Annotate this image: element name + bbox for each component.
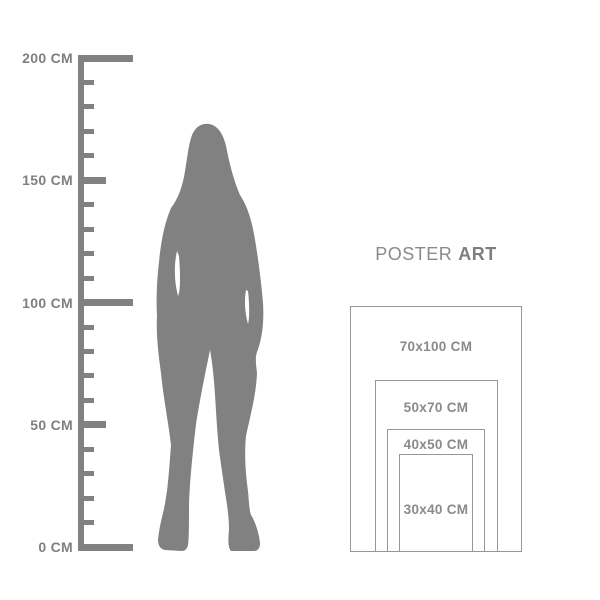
ruler-label-200cm: 200 CM [0,49,73,67]
ruler-tick-80cm [78,349,94,354]
ruler-tick-50cm [78,421,106,428]
ruler-tick-20cm [78,496,94,501]
ruler-tick-130cm [78,227,94,232]
ruler-tick-100cm [78,299,133,306]
ruler-tick-170cm [78,129,94,134]
ruler-label-50cm: 50 CM [0,416,73,434]
ruler-tick-30cm [78,471,94,476]
ruler-tick-110cm [78,276,94,281]
ruler-tick-90cm [78,325,94,330]
ruler-tick-120cm [78,251,94,256]
ruler-tick-70cm [78,373,94,378]
poster-size-label-30x40: 30x40 CM [350,502,522,518]
ruler-tick-150cm [78,177,106,184]
ruler-label-100cm: 100 CM [0,294,73,312]
ruler-tick-180cm [78,104,94,109]
ruler-tick-40cm [78,447,94,452]
ruler-tick-60cm [78,398,94,403]
ruler-tick-140cm [78,202,94,207]
ruler-tick-160cm [78,153,94,158]
woman-silhouette [140,115,290,560]
ruler-tick-190cm [78,80,94,85]
poster-size-label-70x100: 70x100 CM [350,339,522,355]
ruler-tick-0cm [78,544,133,551]
poster-size-label-40x50: 40x50 CM [350,437,522,453]
woman-silhouette-body [157,124,264,551]
ruler-tick-10cm [78,520,94,525]
poster-size-label-50x70: 50x70 CM [350,400,522,416]
poster-title-bold: ART [458,244,497,264]
ruler-tick-200cm [78,55,133,62]
poster-art-title: POSTERART [340,244,532,265]
ruler-label-150cm: 150 CM [0,171,73,189]
poster-title-regular: POSTER [375,244,452,264]
poster-size-guide: 200 CM150 CM100 CM50 CM0 CM POSTERART 70… [0,0,600,600]
ruler-label-0cm: 0 CM [0,538,73,556]
